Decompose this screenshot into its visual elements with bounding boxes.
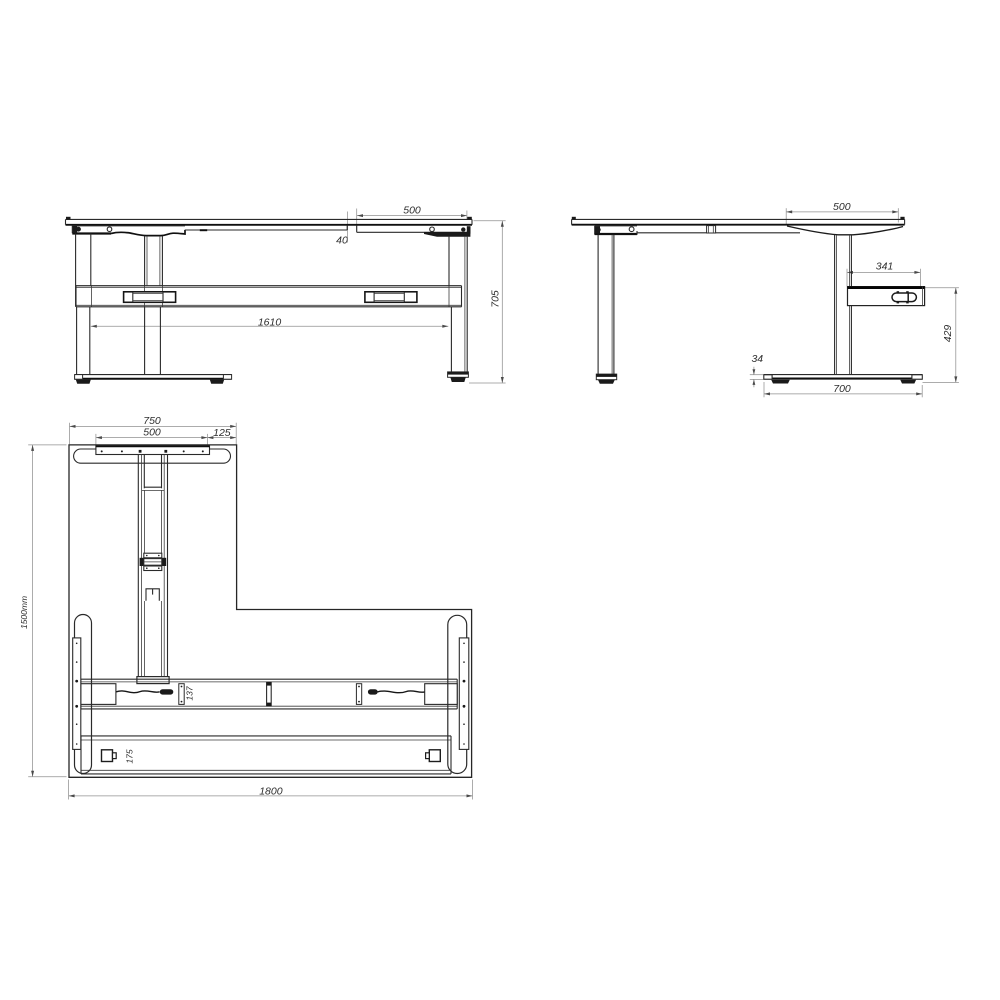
svg-text:1500mm: 1500mm (19, 596, 29, 629)
svg-text:750: 750 (143, 415, 161, 427)
svg-text:34: 34 (751, 353, 763, 365)
svg-text:137: 137 (185, 686, 195, 700)
svg-text:429: 429 (942, 325, 954, 343)
svg-text:341: 341 (876, 260, 894, 272)
svg-text:40: 40 (336, 235, 348, 247)
svg-text:500: 500 (403, 205, 421, 217)
svg-text:125: 125 (213, 427, 231, 439)
svg-text:500: 500 (833, 201, 851, 213)
svg-text:705: 705 (490, 290, 502, 308)
svg-text:175: 175 (125, 749, 135, 763)
svg-text:700: 700 (833, 383, 851, 395)
svg-text:500: 500 (143, 427, 161, 439)
